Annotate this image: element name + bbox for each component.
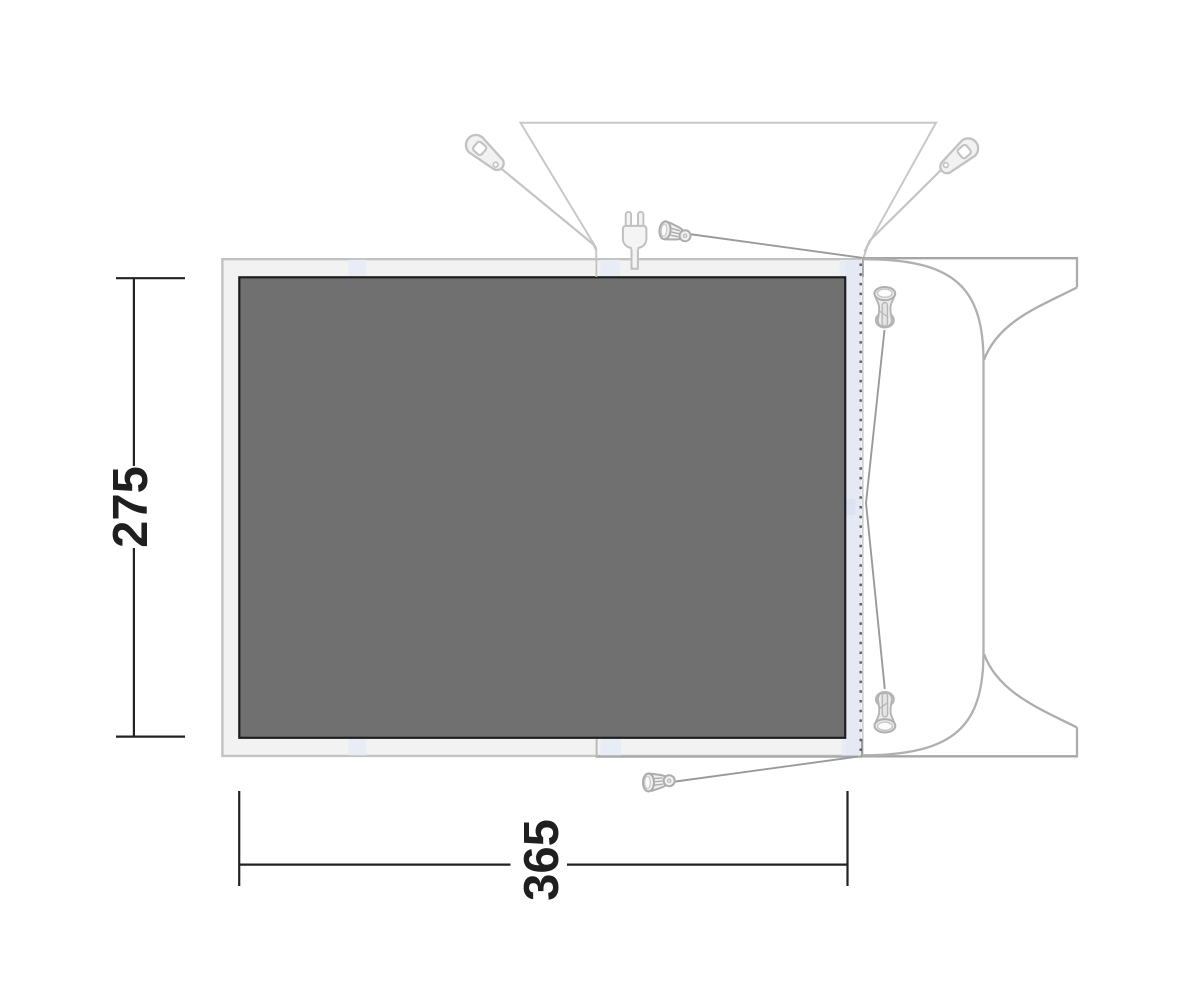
svg-text:275: 275 bbox=[104, 466, 158, 548]
svg-text:365: 365 bbox=[515, 819, 569, 901]
